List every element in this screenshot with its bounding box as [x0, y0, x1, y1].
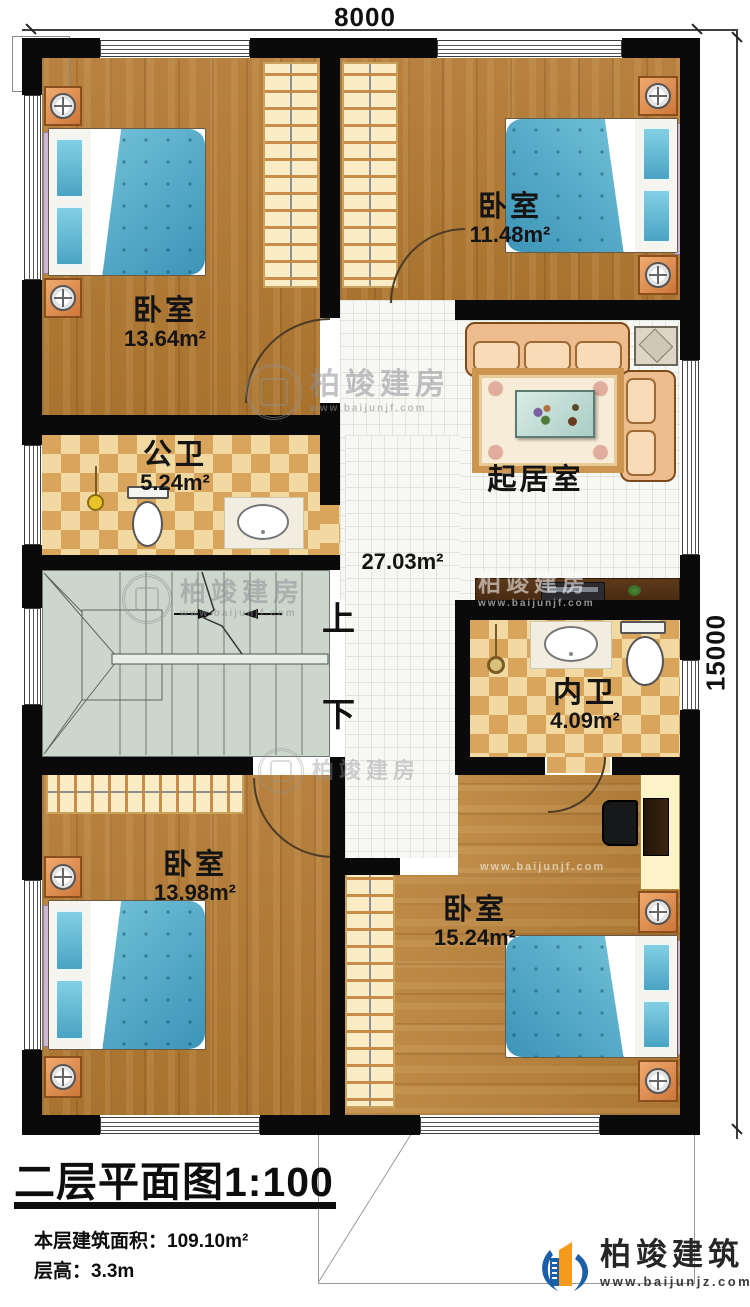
room-area: 4.09m²	[515, 709, 655, 733]
wardrobe	[46, 770, 244, 814]
sofa-cushion	[473, 341, 520, 371]
nightstand	[44, 86, 82, 126]
wall	[612, 757, 700, 775]
room-area: 11.48m²	[440, 223, 580, 247]
window	[24, 445, 41, 545]
room-name: 起居室	[468, 465, 603, 496]
drawing-title: 二层平面图1:100	[14, 1148, 334, 1208]
shower-pole	[495, 624, 497, 660]
window	[100, 1117, 260, 1134]
lamp-icon	[50, 93, 76, 119]
window	[100, 40, 250, 57]
logo-icon	[538, 1234, 592, 1294]
sofa-cushion	[575, 341, 622, 371]
nightstand	[638, 255, 678, 295]
side-table-top	[639, 329, 673, 363]
nightstand	[44, 278, 82, 318]
wall	[320, 435, 340, 505]
window	[682, 660, 699, 710]
pillow	[55, 206, 84, 266]
floor-lamp-pole	[95, 466, 97, 496]
pillow	[642, 1000, 671, 1049]
wall	[250, 38, 437, 58]
window	[24, 95, 41, 280]
window	[682, 360, 699, 555]
dimension-line-right	[736, 29, 738, 1139]
sofa-two-seat	[620, 370, 676, 482]
sofa-cushion	[524, 341, 571, 371]
room-area: 5.24m²	[105, 471, 245, 495]
wall	[260, 1115, 420, 1135]
lamp-icon	[645, 899, 671, 925]
room-name: 卧室	[440, 192, 580, 223]
stairs-up-label: 上	[322, 592, 355, 640]
floor-hall-top	[340, 300, 455, 320]
wall	[22, 280, 42, 445]
bed	[48, 900, 206, 1050]
stairs-drawing	[42, 570, 330, 757]
room-label-bedroom-tl: 卧室 13.64m²	[95, 296, 235, 351]
stairs	[42, 570, 330, 757]
bed	[48, 128, 206, 276]
nightstand	[638, 891, 678, 933]
toilet-icon	[132, 501, 163, 547]
coffee-table	[515, 390, 595, 438]
room-area: 27.03m²	[340, 550, 465, 574]
nightstand	[638, 76, 678, 116]
cup-icon	[568, 417, 577, 426]
brand-name: 柏竣建筑	[600, 1239, 750, 1270]
bed	[505, 935, 678, 1058]
window	[24, 880, 41, 1050]
pillow	[642, 189, 671, 243]
nightstand	[44, 856, 82, 898]
dimension-width-label: 8000	[290, 2, 440, 33]
room-label-bedroom-br: 卧室 15.24m²	[400, 895, 550, 950]
wall	[455, 757, 545, 775]
room-area: 15.24m²	[400, 926, 550, 950]
pillow	[642, 127, 671, 181]
flower-vase-icon	[529, 402, 559, 428]
lamp-icon	[50, 864, 76, 890]
room-name: 公卫	[105, 440, 245, 471]
stairs-down-label: 下	[322, 688, 355, 736]
floor-hall	[345, 435, 460, 858]
pillow	[642, 943, 671, 992]
wall	[455, 620, 470, 757]
room-name: 卧室	[125, 850, 265, 881]
lamp-icon	[50, 1064, 76, 1090]
wall	[345, 858, 400, 875]
side-table	[634, 326, 678, 366]
wall	[330, 757, 345, 1115]
plant-icon	[628, 585, 641, 596]
window	[437, 40, 622, 57]
sink-icon	[237, 504, 289, 540]
sofa-cushion	[626, 378, 656, 424]
wardrobe	[263, 62, 319, 288]
floor-height-line: 层高：3.3m	[34, 1256, 134, 1283]
drawing-scale: 1:100	[224, 1159, 334, 1205]
room-label-public-bath: 公卫 5.24m²	[105, 440, 245, 495]
wall	[455, 300, 700, 320]
room-label-ensuite-bath: 内卫 4.09m²	[515, 678, 655, 733]
desk	[643, 798, 669, 856]
room-label-bedroom-tr: 卧室 11.48m²	[440, 192, 580, 247]
room-label-living: 起居室	[468, 465, 603, 496]
room-name: 卧室	[95, 296, 235, 327]
window	[420, 1117, 600, 1134]
wall	[455, 600, 700, 620]
wall	[22, 1115, 100, 1135]
office-chair	[602, 800, 638, 846]
sofa-cushion	[626, 430, 656, 476]
room-area: 13.98m²	[125, 881, 265, 905]
wall	[42, 415, 340, 435]
lamp-icon	[645, 1068, 671, 1094]
drawing-title-text: 二层平面图	[14, 1159, 224, 1205]
nightstand	[44, 1056, 82, 1098]
floor-plan-canvas: 8000 15000	[0, 0, 750, 1307]
wall	[22, 38, 42, 95]
floor-lamp-icon	[87, 494, 104, 511]
wall	[600, 1115, 700, 1135]
wardrobe	[345, 866, 395, 1108]
title-underline	[14, 1202, 336, 1209]
wall	[22, 705, 42, 880]
brand-website: www.baijunjz.com	[600, 1274, 750, 1289]
nightstand	[638, 1060, 678, 1102]
room-area-living: 27.03m²	[340, 550, 465, 574]
room-label-bedroom-bl: 卧室 13.98m²	[125, 850, 265, 905]
lamp-icon	[645, 83, 671, 109]
toilet-tank	[620, 621, 666, 634]
laptop-icon	[541, 582, 605, 602]
lamp-icon	[645, 262, 671, 288]
room-name: 卧室	[400, 895, 550, 926]
room-name: 内卫	[515, 678, 655, 709]
pillow	[55, 910, 84, 971]
wall	[320, 58, 340, 318]
sink-icon	[544, 626, 598, 662]
shower-drain-icon	[487, 656, 505, 674]
dimension-height-label: 15000	[701, 605, 732, 701]
cup-icon	[572, 404, 579, 411]
window	[24, 608, 41, 705]
wall	[22, 555, 340, 570]
pillow	[55, 138, 84, 198]
floor-public-bath-door	[320, 505, 340, 555]
floor-area-line: 本层建筑面积：109.10m²	[34, 1226, 248, 1253]
wall	[22, 757, 253, 775]
pillow	[55, 979, 84, 1040]
wardrobe	[342, 62, 398, 288]
room-area: 13.64m²	[95, 327, 235, 351]
lamp-icon	[50, 285, 76, 311]
brand-logo: 柏竣建筑 www.baijunjz.com	[538, 1234, 750, 1294]
